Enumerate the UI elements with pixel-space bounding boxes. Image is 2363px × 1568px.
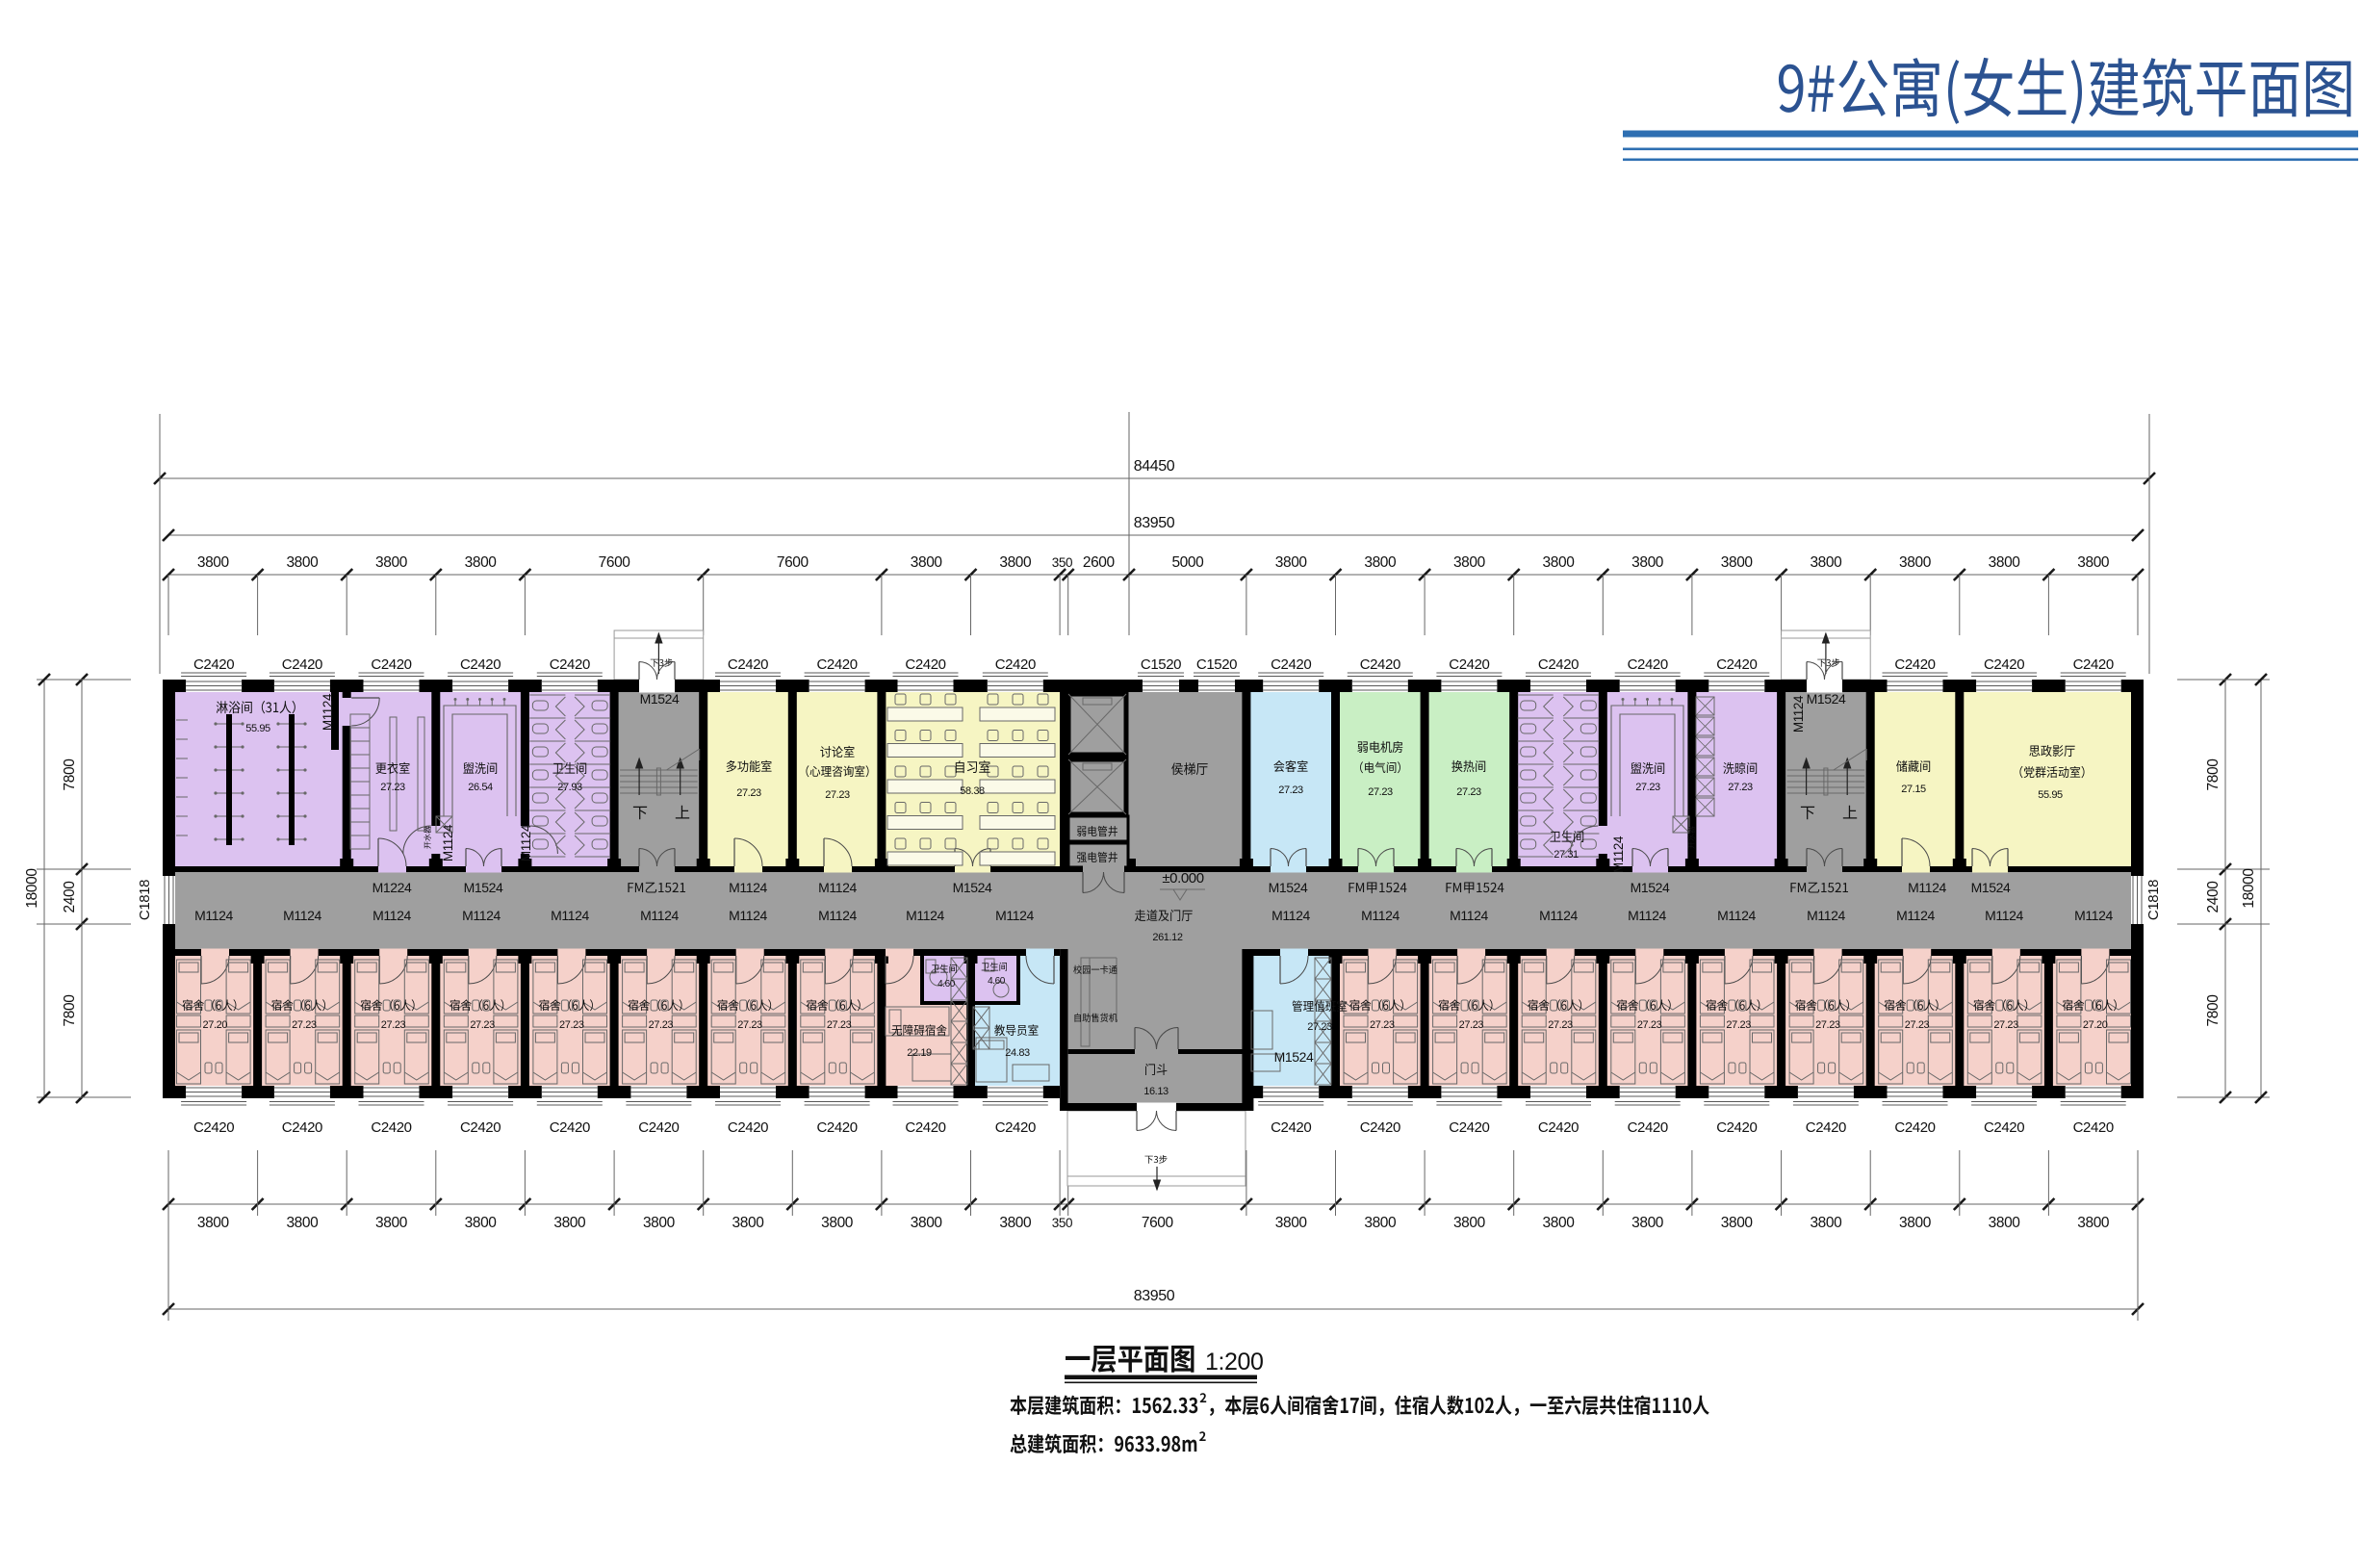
svg-text:M1124: M1124 [372,908,411,923]
svg-text:3800: 3800 [1810,1215,1842,1231]
svg-text:7800: 7800 [62,758,78,791]
svg-text:27.93: 27.93 [557,782,582,793]
svg-text:3800: 3800 [1364,554,1397,571]
svg-text:M1124: M1124 [551,908,589,923]
svg-text:3800: 3800 [1631,1215,1664,1231]
svg-text:C2420: C2420 [1716,1119,1757,1136]
svg-text:3800: 3800 [1899,554,1932,571]
svg-text:18000: 18000 [24,868,40,909]
svg-text:3800: 3800 [1453,554,1486,571]
svg-text:7600: 7600 [599,554,631,571]
svg-text:M1124: M1124 [441,824,455,861]
svg-text:3800: 3800 [375,554,408,571]
svg-text:27.23: 27.23 [825,789,850,801]
svg-text:M1124: M1124 [640,908,679,923]
svg-text:M1524: M1524 [1631,880,1670,895]
svg-text:27.23: 27.23 [1728,782,1753,793]
svg-text:350: 350 [1052,1216,1072,1230]
svg-text:2600: 2600 [1083,554,1116,571]
svg-text:C2420: C2420 [995,656,1036,673]
svg-text:C2420: C2420 [550,1119,590,1136]
svg-text:22.19: 22.19 [907,1047,932,1059]
svg-text:M1524: M1524 [1971,880,2011,895]
svg-text:1:200: 1:200 [1205,1349,1264,1375]
svg-text:M1524: M1524 [464,880,503,895]
svg-text:C2420: C2420 [371,1119,411,1136]
svg-text:83950: 83950 [1134,1288,1175,1304]
svg-text:C2420: C2420 [282,656,322,673]
svg-text:M1124: M1124 [1628,908,1666,923]
svg-text:18000: 18000 [2241,868,2257,909]
svg-text:C2420: C2420 [1894,1119,1935,1136]
svg-text:27.20: 27.20 [2083,1019,2108,1031]
svg-text:M1524: M1524 [953,880,992,895]
svg-text:27.23: 27.23 [381,1019,406,1031]
svg-text:C1520: C1520 [1141,656,1181,673]
svg-text:C2420: C2420 [728,656,768,673]
svg-text:C2420: C2420 [1984,656,2024,673]
svg-text:C1818: C1818 [137,880,153,920]
svg-text:261.12: 261.12 [1152,932,1183,943]
svg-text:27.23: 27.23 [559,1019,584,1031]
svg-text:27.31: 27.31 [1554,849,1579,861]
svg-text:C2420: C2420 [1271,656,1311,673]
svg-text:C2420: C2420 [550,656,590,673]
svg-text:C2420: C2420 [2073,1119,2114,1136]
svg-text:3800: 3800 [821,1215,854,1231]
svg-text:4.60: 4.60 [988,976,1006,987]
svg-text:27.23: 27.23 [1456,786,1481,798]
svg-text:3800: 3800 [465,554,498,571]
svg-text:M1124: M1124 [729,880,767,895]
svg-text:3800: 3800 [1631,554,1664,571]
svg-text:3800: 3800 [1721,554,1754,571]
svg-text:27.23: 27.23 [470,1019,495,1031]
svg-text:55.95: 55.95 [245,723,270,734]
svg-text:27.20: 27.20 [203,1019,228,1031]
svg-text:3800: 3800 [2077,554,2110,571]
svg-text:M1124: M1124 [1450,908,1488,923]
svg-text:C2420: C2420 [1538,656,1579,673]
svg-text:C2420: C2420 [638,1119,679,1136]
svg-text:M1124: M1124 [818,880,857,895]
svg-text:83950: 83950 [1134,515,1175,531]
svg-text:C2420: C2420 [1806,1119,1846,1136]
svg-text:C2420: C2420 [1360,656,1400,673]
svg-text:C2420: C2420 [1716,656,1757,673]
svg-text:3800: 3800 [1543,1215,1576,1231]
svg-text:C2420: C2420 [1360,1119,1400,1136]
svg-text:C2420: C2420 [193,656,234,673]
svg-text:M1124: M1124 [462,908,501,923]
svg-text:M1124: M1124 [906,908,944,923]
svg-text:C2420: C2420 [460,656,501,673]
svg-text:27.23: 27.23 [292,1019,317,1031]
svg-text:27.23: 27.23 [1993,1019,2018,1031]
svg-text:C1818: C1818 [2145,880,2162,920]
svg-text:27.23: 27.23 [736,787,761,799]
svg-text:3800: 3800 [911,554,943,571]
svg-text:C2420: C2420 [193,1119,234,1136]
svg-text:3800: 3800 [732,1215,765,1231]
svg-text:C2420: C2420 [816,1119,857,1136]
svg-text:7600: 7600 [777,554,809,571]
svg-text:M1124: M1124 [194,908,233,923]
svg-text:84450: 84450 [1134,458,1175,475]
svg-text:M1124: M1124 [995,908,1034,923]
svg-text:C2420: C2420 [1984,1119,2024,1136]
svg-text:C2420: C2420 [1894,656,1935,673]
svg-text:C1520: C1520 [1196,656,1237,673]
svg-text:M1124: M1124 [1985,908,2023,923]
svg-text:27.23: 27.23 [1726,1019,1751,1031]
svg-text:±0.000: ±0.000 [1162,870,1203,887]
svg-text:27.23: 27.23 [1637,1019,1662,1031]
svg-text:27.23: 27.23 [1459,1019,1484,1031]
svg-text:7600: 7600 [1142,1215,1174,1231]
svg-text:3800: 3800 [286,1215,319,1231]
svg-text:27.23: 27.23 [827,1019,852,1031]
svg-text:24.83: 24.83 [1005,1047,1030,1059]
svg-text:7800: 7800 [62,994,78,1027]
svg-text:M1124: M1124 [818,908,857,923]
svg-text:C2420: C2420 [728,1119,768,1136]
svg-text:3800: 3800 [2077,1215,2110,1231]
svg-text:27.23: 27.23 [1307,1021,1332,1033]
svg-text:3800: 3800 [197,554,230,571]
svg-text:3800: 3800 [643,1215,676,1231]
svg-text:M1124: M1124 [1896,908,1935,923]
svg-text:27.23: 27.23 [1278,784,1303,796]
svg-text:M1524: M1524 [640,691,680,707]
svg-text:C2420: C2420 [816,656,857,673]
svg-text:3800: 3800 [286,554,319,571]
svg-text:27.15: 27.15 [1901,784,1926,795]
svg-text:C2420: C2420 [1449,656,1489,673]
svg-text:3800: 3800 [1989,554,2021,571]
svg-text:3800: 3800 [1721,1215,1754,1231]
svg-text:M1124: M1124 [2074,908,2113,923]
svg-text:M1124: M1124 [321,693,335,731]
svg-text:27.23: 27.23 [649,1019,674,1031]
svg-text:3800: 3800 [1899,1215,1932,1231]
svg-text:M1124: M1124 [1908,880,1946,895]
svg-text:3800: 3800 [375,1215,408,1231]
svg-text:3800: 3800 [553,1215,586,1231]
svg-text:C2420: C2420 [1449,1119,1489,1136]
svg-text:27.23: 27.23 [1635,782,1660,793]
svg-text:M1124: M1124 [1807,908,1845,923]
svg-text:27.23: 27.23 [1548,1019,1573,1031]
svg-text:3800: 3800 [911,1215,943,1231]
svg-text:3800: 3800 [1543,554,1576,571]
svg-text:3800: 3800 [1364,1215,1397,1231]
svg-text:M1124: M1124 [1791,695,1806,733]
svg-text:26.54: 26.54 [468,782,493,793]
svg-text:M1524: M1524 [1274,1049,1314,1065]
svg-text:M1124: M1124 [1611,835,1626,873]
svg-text:C2420: C2420 [371,656,411,673]
svg-text:3800: 3800 [197,1215,230,1231]
svg-text:C2420: C2420 [995,1119,1036,1136]
svg-text:M1124: M1124 [519,824,533,861]
svg-text:7800: 7800 [2205,758,2222,791]
svg-text:M1124: M1124 [729,908,767,923]
svg-text:27.23: 27.23 [1368,786,1393,798]
svg-text:2400: 2400 [62,881,78,913]
svg-text:C2420: C2420 [905,1119,945,1136]
svg-text:2400: 2400 [2205,881,2222,913]
svg-text:3800: 3800 [1989,1215,2021,1231]
svg-text:3800: 3800 [999,554,1032,571]
svg-text:350: 350 [1052,555,1072,570]
svg-text:27.23: 27.23 [737,1019,762,1031]
svg-text:3800: 3800 [999,1215,1032,1231]
svg-text:M1524: M1524 [1807,691,1846,707]
svg-text:3800: 3800 [1453,1215,1486,1231]
svg-text:3800: 3800 [1275,554,1308,571]
svg-text:C2420: C2420 [1628,656,1668,673]
svg-text:27.23: 27.23 [1905,1019,1930,1031]
svg-text:5000: 5000 [1171,554,1204,571]
svg-text:3800: 3800 [1810,554,1842,571]
svg-text:7800: 7800 [2205,994,2222,1027]
svg-text:3800: 3800 [465,1215,498,1231]
svg-text:4.60: 4.60 [937,979,956,990]
svg-text:27.23: 27.23 [1370,1019,1395,1031]
svg-text:27.23: 27.23 [380,782,405,793]
svg-text:55.95: 55.95 [2038,789,2063,801]
svg-text:C2420: C2420 [2073,656,2114,673]
svg-text:M1124: M1124 [1539,908,1578,923]
svg-text:C2420: C2420 [1628,1119,1668,1136]
svg-text:3800: 3800 [1275,1215,1308,1231]
svg-text:M1124: M1124 [1717,908,1756,923]
svg-text:C2420: C2420 [1271,1119,1311,1136]
svg-text:M1124: M1124 [1361,908,1400,923]
svg-text:C2420: C2420 [282,1119,322,1136]
svg-text:M1524: M1524 [1269,880,1308,895]
svg-text:M1124: M1124 [283,908,321,923]
svg-text:C2420: C2420 [1538,1119,1579,1136]
svg-text:16.13: 16.13 [1143,1086,1169,1097]
svg-text:M1224: M1224 [372,880,412,895]
svg-text:C2420: C2420 [905,656,945,673]
svg-text:M1124: M1124 [1271,908,1310,923]
svg-text:C2420: C2420 [460,1119,501,1136]
svg-text:27.23: 27.23 [1815,1019,1840,1031]
svg-text:58.38: 58.38 [960,785,985,797]
